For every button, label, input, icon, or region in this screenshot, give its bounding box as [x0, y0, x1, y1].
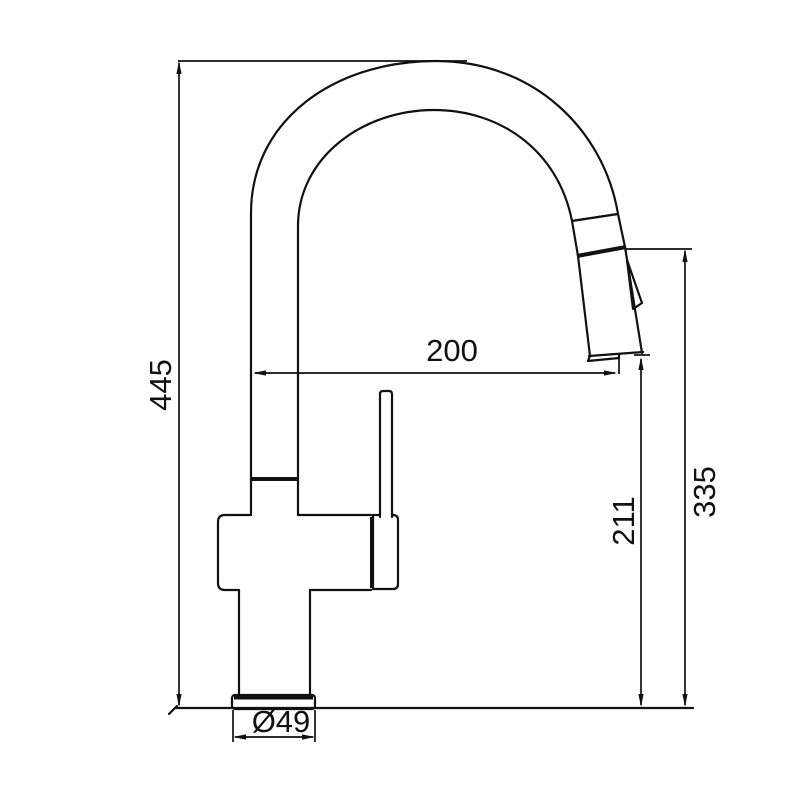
dimension-annotations: 445 200 211 335: [143, 61, 722, 742]
dim-49-label: Ø49: [252, 704, 311, 739]
dim-445-label: 445: [143, 359, 178, 411]
dim-211-label: 211: [606, 496, 641, 545]
dim-445-arrow-up: [176, 61, 181, 74]
faucet-dimension-diagram: 445 200 211 335: [0, 0, 800, 800]
dim-200-arrow-right: [604, 370, 617, 375]
dim-49-arrow-left: [233, 734, 246, 739]
base-column-fill: [240, 587, 309, 697]
dimension-spout-reach: 200: [253, 333, 619, 376]
dim-200-label: 200: [426, 333, 478, 368]
drawing-canvas: 445 200 211 335: [0, 0, 800, 800]
gooseneck-spout-outline: [251, 61, 618, 517]
handle-block: [373, 515, 398, 589]
handle-lever: [380, 391, 392, 517]
dim-211-arrow-down: [638, 694, 643, 707]
dim-335-arrow-down: [682, 694, 687, 707]
dim-335-label: 335: [687, 466, 722, 518]
faucet-figure: [169, 61, 693, 714]
dim-211-arrow-up: [638, 357, 643, 370]
dim-335-arrow-up: [682, 249, 687, 262]
dimension-outlet-height: 211: [606, 355, 650, 707]
